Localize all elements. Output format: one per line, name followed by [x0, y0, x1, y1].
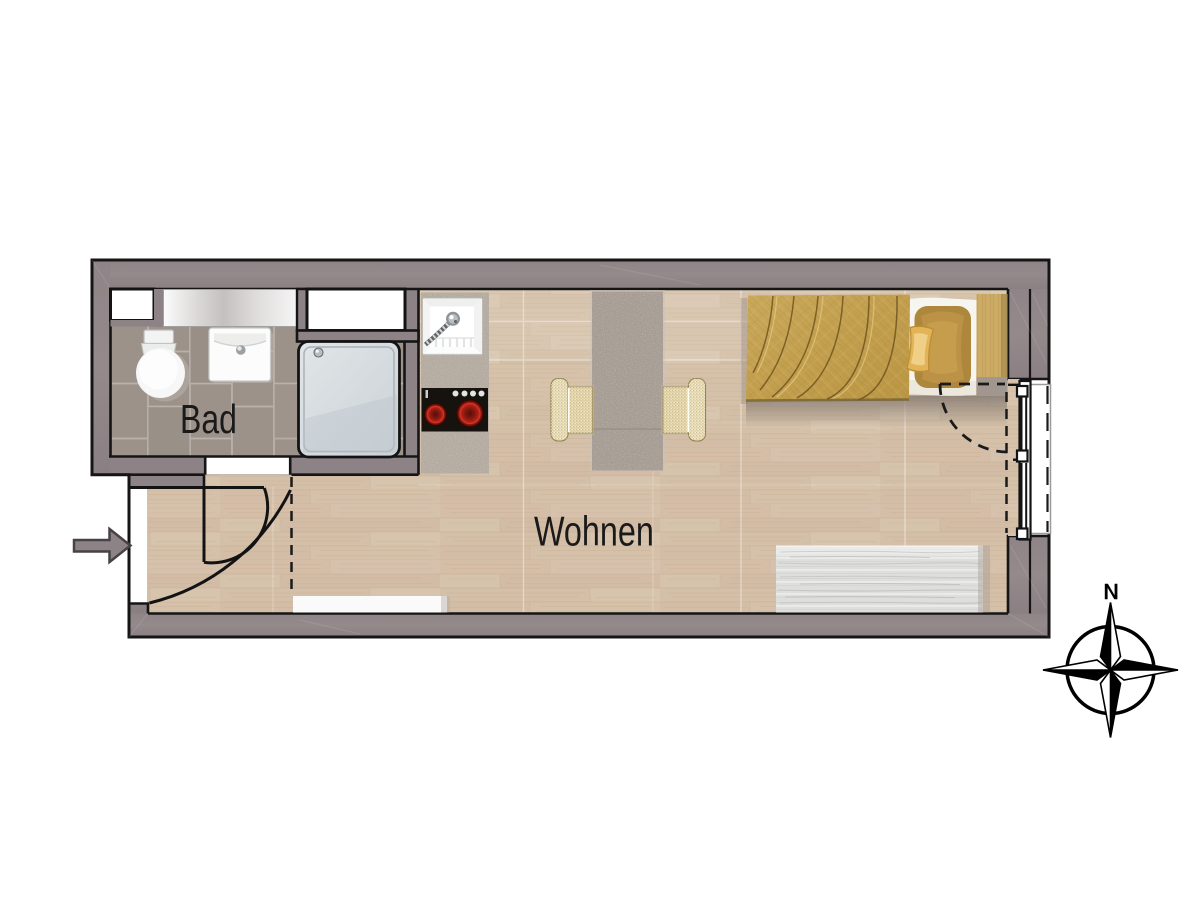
svg-text:Bad: Bad — [180, 396, 237, 442]
svg-text:Wohnen: Wohnen — [534, 507, 654, 554]
